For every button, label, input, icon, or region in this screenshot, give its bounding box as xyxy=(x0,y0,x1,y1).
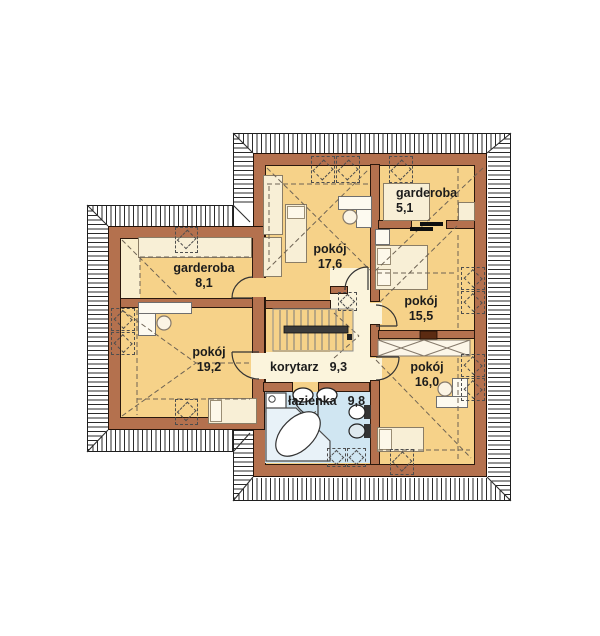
plan-lines-overlay xyxy=(0,0,600,636)
room-name: pokój xyxy=(295,242,365,257)
room-area: 19,2 xyxy=(173,360,245,375)
room-label-garderoba-8-1: garderoba 8,1 xyxy=(167,261,241,291)
room-label-garderoba-5-1: garderoba 5,1 xyxy=(396,186,468,216)
bidet xyxy=(349,424,365,438)
room-label-pokoj-19-2: pokój 19,2 xyxy=(173,345,245,375)
room-area: 15,5 xyxy=(385,309,457,324)
roof-window-symbol xyxy=(347,448,366,467)
roof-window-symbol xyxy=(461,378,485,401)
room-name: korytarz xyxy=(270,360,319,374)
roof-window-symbol xyxy=(311,156,335,183)
roof-window-symbol xyxy=(389,156,413,183)
roof-window-symbol xyxy=(461,267,485,290)
room-area: 17,6 xyxy=(295,257,365,272)
room-name: łazienka xyxy=(288,394,337,408)
roof-window-symbol xyxy=(111,332,135,355)
floor-plan: pokój 17,6 garderoba 5,1 pokój 15,5 pokó… xyxy=(0,0,600,636)
room-area: 16,0 xyxy=(391,375,463,390)
room-name: garderoba xyxy=(167,261,241,276)
stair-railing xyxy=(284,326,348,333)
room-name: pokój xyxy=(391,360,463,375)
room-label-pokoj-17-6: pokój 17,6 xyxy=(295,242,365,272)
roof-window-symbol xyxy=(338,292,357,311)
room-label-korytarz: korytarz9,3 xyxy=(270,360,347,374)
roof-window-symbol xyxy=(327,448,346,467)
room-label-lazienka: łazienka9,8 xyxy=(288,394,365,408)
sliding-door-symbol xyxy=(410,222,443,231)
staircase xyxy=(273,309,353,351)
chair xyxy=(157,316,171,330)
room-area: 9,8 xyxy=(348,394,365,408)
roof-window-symbol xyxy=(390,449,414,475)
roof-window-symbol xyxy=(461,354,485,377)
roof-window-symbol xyxy=(111,308,135,331)
chair xyxy=(343,210,357,224)
room-label-pokoj-15-5: pokój 15,5 xyxy=(385,294,457,324)
roof-window-symbol xyxy=(175,227,198,253)
room-name: pokój xyxy=(385,294,457,309)
room-area: 5,1 xyxy=(396,201,468,216)
roof-window-symbol xyxy=(461,291,485,314)
wardrobe-x-symbol xyxy=(378,340,470,356)
roof-window-symbol xyxy=(175,399,198,425)
room-area: 8,1 xyxy=(167,276,241,291)
room-area: 9,3 xyxy=(330,360,347,374)
room-name: pokój xyxy=(173,345,245,360)
room-label-pokoj-16-0: pokój 16,0 xyxy=(391,360,463,390)
roof-window-symbol xyxy=(336,156,360,183)
chimney-block xyxy=(420,331,437,339)
room-name: garderoba xyxy=(396,186,468,201)
